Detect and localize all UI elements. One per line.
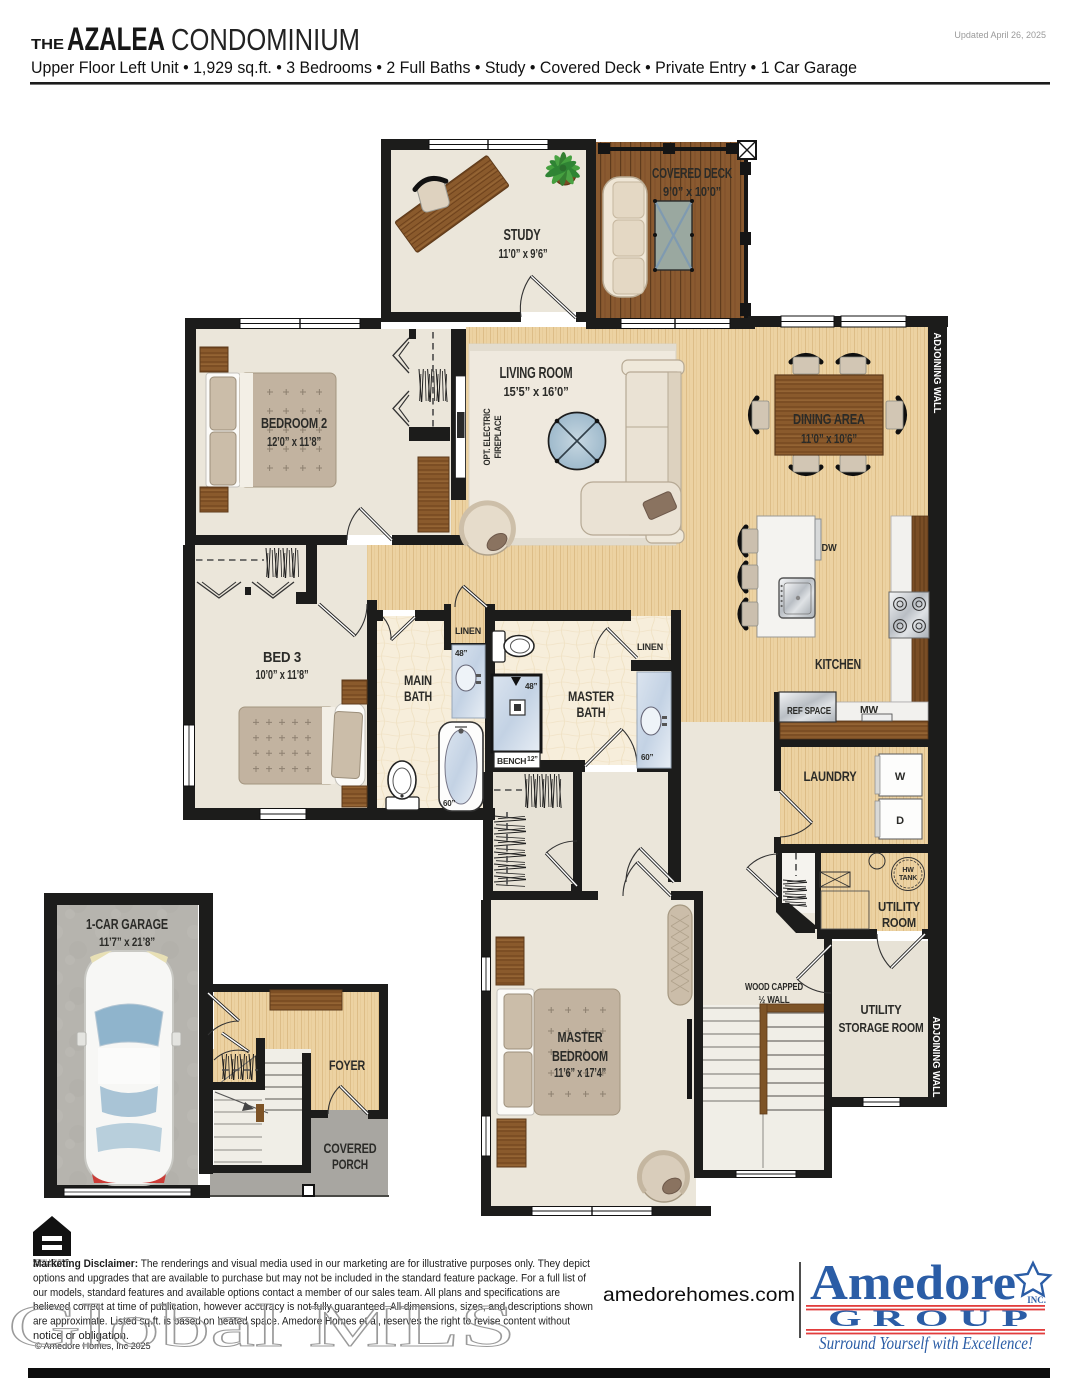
svg-text:W: W: [895, 771, 906, 783]
svg-text:60”: 60”: [443, 799, 455, 808]
svg-text:LIVING ROOM: LIVING ROOM: [500, 365, 573, 382]
svg-text:OPT. ELECTRIC: OPT. ELECTRIC: [482, 408, 493, 465]
svg-text:BENCH: BENCH: [497, 756, 526, 766]
svg-text:options and upgrades that are: options and upgrades that are available …: [33, 1272, 587, 1284]
svg-text:INC.: INC.: [1027, 1295, 1046, 1305]
svg-text:Marketing Disclaimer: The rend: Marketing Disclaimer: The renderings and…: [33, 1258, 590, 1270]
svg-text:12”: 12”: [527, 756, 538, 763]
svg-text:11’6” x 17’4”: 11’6” x 17’4”: [554, 1066, 606, 1080]
svg-text:FOYER: FOYER: [329, 1057, 365, 1073]
svg-text:STUDY: STUDY: [504, 227, 542, 244]
svg-text:Global MLS: Global MLS: [8, 1293, 516, 1359]
svg-text:Upper Floor Left Unit • 1,929: Upper Floor Left Unit • 1,929 sq.ft. • 3…: [31, 59, 857, 77]
svg-text:COVERED: COVERED: [324, 1140, 377, 1156]
svg-text:11’0” x 9’6”: 11’0” x 9’6”: [499, 246, 548, 261]
svg-text:PORCH: PORCH: [332, 1156, 368, 1172]
svg-text:BEDROOM 2: BEDROOM 2: [261, 415, 327, 432]
svg-text:MASTER: MASTER: [558, 1029, 603, 1046]
svg-text:12’0” x 11’8”: 12’0” x 11’8”: [267, 435, 321, 449]
svg-text:AZALEA: AZALEA: [67, 21, 165, 57]
svg-text:BATH: BATH: [404, 689, 432, 704]
svg-text:DW: DW: [822, 543, 838, 554]
svg-text:48”: 48”: [525, 682, 537, 691]
svg-text:amedorehomes.com: amedorehomes.com: [603, 1284, 795, 1306]
svg-text:Amedore: Amedore: [810, 1254, 1016, 1310]
svg-text:11’7” x 21’8”: 11’7” x 21’8”: [99, 935, 155, 949]
svg-text:LAUNDRY: LAUNDRY: [804, 768, 858, 784]
svg-text:9’0” x 10’0”: 9’0” x 10’0”: [663, 185, 721, 199]
svg-text:DINING AREA: DINING AREA: [793, 412, 866, 428]
svg-text:½ WALL: ½ WALL: [759, 994, 791, 1006]
svg-text:1-CAR GARAGE: 1-CAR GARAGE: [86, 917, 168, 933]
svg-text:COVERED DECK: COVERED DECK: [652, 166, 733, 182]
svg-text:HW: HW: [902, 867, 914, 874]
svg-text:KITCHEN: KITCHEN: [815, 657, 861, 673]
svg-text:10’0” x 11’8”: 10’0” x 11’8”: [256, 668, 309, 682]
svg-text:THE: THE: [31, 36, 64, 53]
svg-text:11’0” x 10’6”: 11’0” x 10’6”: [801, 432, 857, 446]
svg-text:LINEN: LINEN: [637, 642, 663, 653]
svg-text:MW: MW: [860, 705, 879, 716]
svg-text:UTILITY: UTILITY: [861, 1002, 902, 1017]
svg-text:ADJOINING WALL: ADJOINING WALL: [930, 1017, 941, 1098]
svg-text:48”: 48”: [455, 649, 467, 658]
svg-text:Updated April 26, 2025: Updated April 26, 2025: [954, 30, 1046, 40]
svg-text:MAIN: MAIN: [404, 673, 432, 688]
svg-text:BED 3: BED 3: [263, 649, 301, 666]
svg-text:LINEN: LINEN: [455, 626, 481, 637]
svg-text:G R O U P: G R O U P: [828, 1306, 1028, 1331]
svg-text:ROOM: ROOM: [882, 915, 916, 930]
svg-text:STORAGE ROOM: STORAGE ROOM: [839, 1020, 924, 1035]
svg-text:60”: 60”: [641, 753, 653, 762]
svg-text:WOOD CAPPED: WOOD CAPPED: [745, 981, 803, 993]
svg-text:ADJOINING WALL: ADJOINING WALL: [931, 333, 942, 414]
svg-text:TANK: TANK: [899, 875, 917, 882]
svg-text:D: D: [896, 815, 904, 827]
svg-text:Surround Yourself with Excelle: Surround Yourself with Excellence!: [819, 1333, 1033, 1353]
svg-text:REF SPACE: REF SPACE: [787, 705, 831, 717]
svg-text:MASTER: MASTER: [568, 689, 614, 704]
svg-text:UTILITY: UTILITY: [878, 899, 920, 914]
svg-text:BATH: BATH: [577, 705, 606, 720]
svg-text:FIREPLACE: FIREPLACE: [493, 416, 504, 459]
svg-text:CONDOMINIUM: CONDOMINIUM: [171, 22, 360, 57]
svg-text:15’5” x 16’0”: 15’5” x 16’0”: [504, 384, 569, 399]
svg-text:BEDROOM: BEDROOM: [552, 1048, 608, 1065]
